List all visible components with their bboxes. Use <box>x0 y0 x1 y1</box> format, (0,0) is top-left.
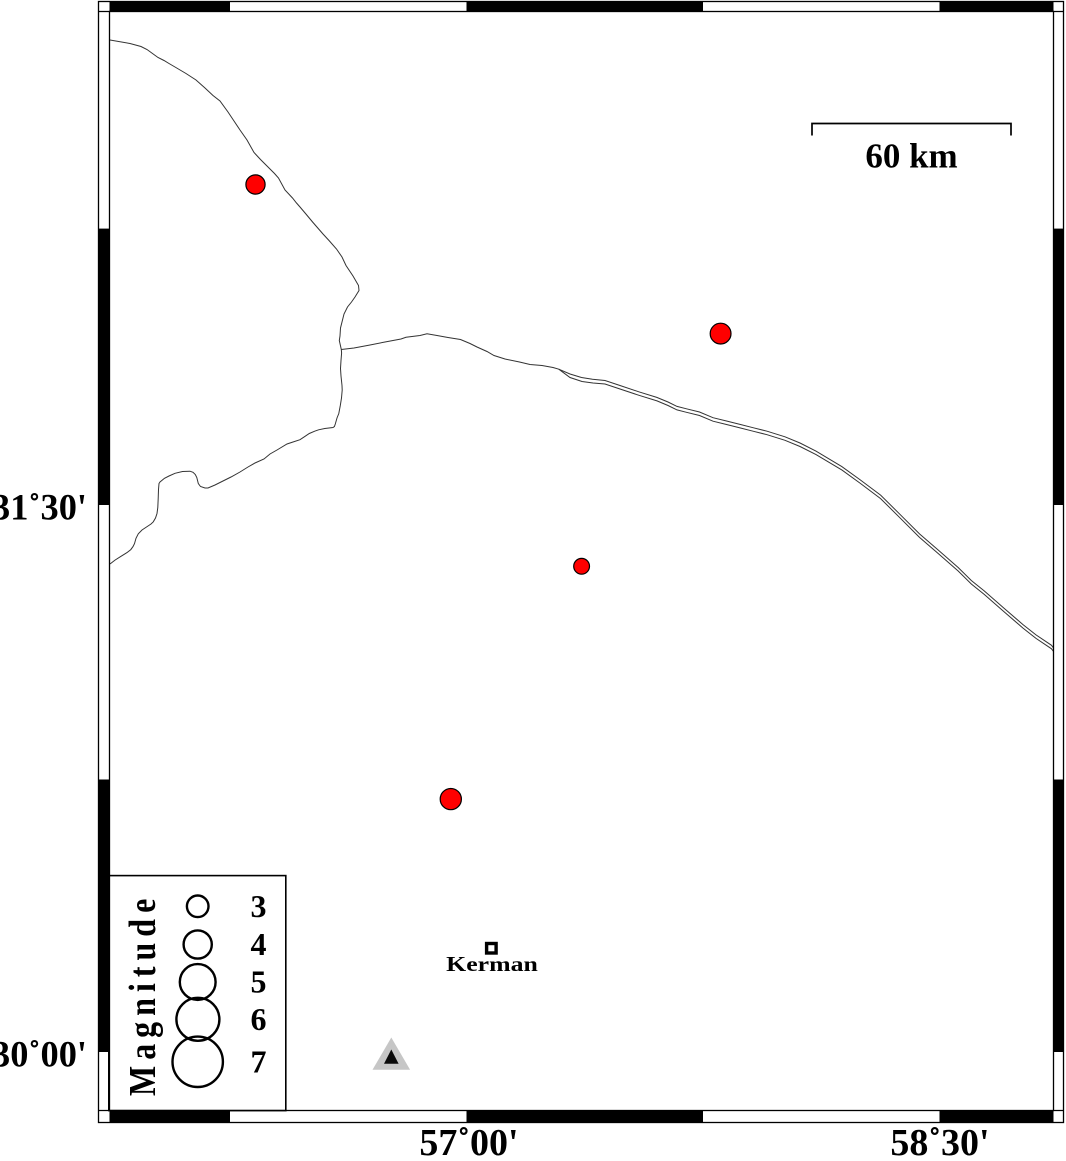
svg-text:7: 7 <box>251 1044 267 1080</box>
svg-text:5: 5 <box>251 964 267 1000</box>
svg-text:30˚00': 30˚00' <box>0 1035 87 1076</box>
svg-text:31˚30': 31˚30' <box>0 488 87 529</box>
svg-text:Magnitude: Magnitude <box>122 893 164 1096</box>
svg-text:6: 6 <box>251 1001 267 1037</box>
svg-text:57˚00': 57˚00' <box>419 1122 518 1161</box>
svg-text:3: 3 <box>251 888 267 924</box>
svg-text:Kerman: Kerman <box>446 953 538 977</box>
svg-text:60 km: 60 km <box>865 137 957 176</box>
svg-text:58˚30': 58˚30' <box>890 1122 989 1161</box>
svg-text:4: 4 <box>251 926 267 962</box>
